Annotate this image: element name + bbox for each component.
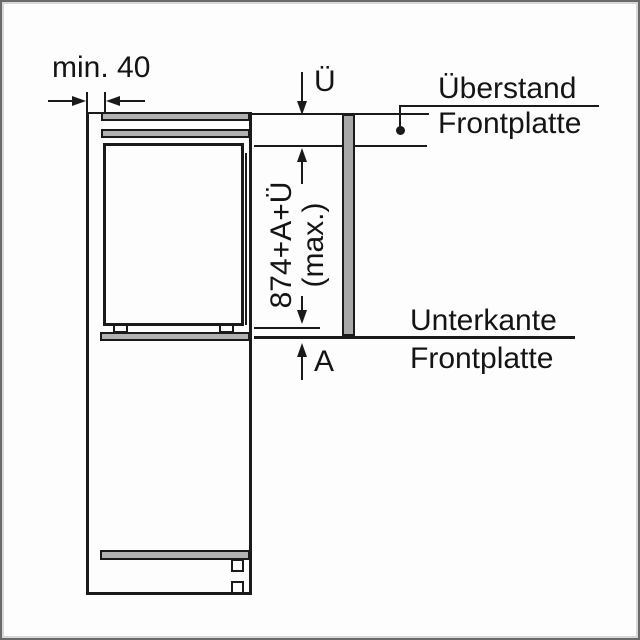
dimension-arrow-down2-icon	[297, 310, 307, 324]
cabinet-second-panel	[101, 129, 250, 138]
min-gap-label: min. 40	[52, 51, 150, 84]
min-gap-tick-left	[86, 92, 88, 114]
min-gap-dim-line-right	[119, 100, 145, 102]
dimension-arrow-left-icon	[106, 96, 120, 106]
dimension-arrow-up-icon	[297, 148, 307, 162]
overhang-symbol-label: Ü	[314, 65, 336, 98]
mounting-bracket-upper	[231, 559, 244, 572]
cabinet-left-wall	[86, 112, 89, 595]
installation-diagram: min. 40 Ü Überstand Frontplatte 874+A+Ü(…	[0, 0, 640, 640]
overhang-name-line1: Überstand	[438, 72, 576, 105]
cabinet-shelf-panel	[100, 332, 250, 341]
front-panel-bar	[342, 114, 355, 336]
appliance-niche-box	[103, 143, 244, 326]
overhang-arrow-line	[301, 72, 303, 102]
dimension-arrow-up2-icon	[297, 343, 307, 357]
front-panel-top-level-line	[252, 113, 429, 115]
appliance-door-strip	[245, 153, 247, 325]
cabinet-top-panel	[101, 112, 250, 121]
niche-top-level-line	[254, 145, 427, 147]
cabinet-bottom-line	[86, 592, 252, 595]
overhang-name-line2: Frontplatte	[438, 107, 581, 140]
gap-symbol-label: A	[314, 345, 334, 378]
min-gap-dim-line-left	[48, 100, 74, 102]
overhang-callout-dot-icon	[396, 126, 405, 135]
panel-height-end-line	[254, 327, 320, 329]
bottom-edge-name-line2: Frontplatte	[410, 342, 553, 375]
panel-height-qualifier: (max.)	[297, 203, 330, 288]
cabinet-plinth-panel	[100, 550, 250, 560]
panel-height-formula: 874+A+Ü	[265, 182, 298, 309]
panel-height-label: 874+A+Ü(max.)	[266, 175, 330, 315]
mounting-bracket-lower	[231, 581, 244, 594]
bottom-edge-name-line1: Unterkante	[410, 304, 557, 337]
cabinet-right-wall	[249, 112, 252, 595]
gap-arrow-line	[301, 356, 303, 380]
dimension-arrow-right-icon	[72, 96, 86, 106]
